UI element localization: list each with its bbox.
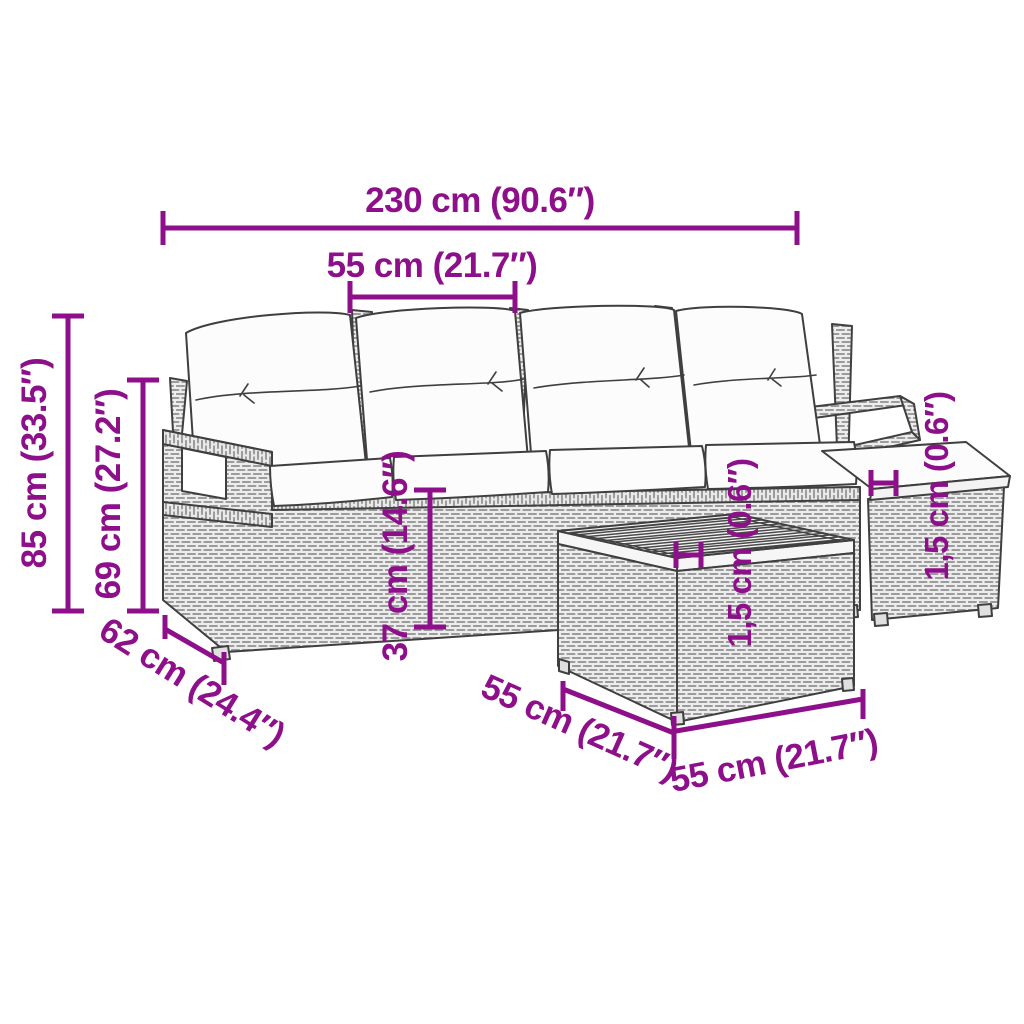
- dim-label-seat-height: 37 cm (14.6″): [376, 451, 415, 662]
- seat-cushion-1: [270, 458, 393, 506]
- dim-label-table-depth: 55 cm (21.7″): [667, 721, 881, 799]
- dim-label-overall-height: 85 cm (33.5″): [15, 358, 54, 569]
- product-dimension-diagram: 230 cm (90.6″) 55 cm (21.7″) 85 cm (33.5…: [0, 0, 1024, 1024]
- furniture-illustration: [163, 306, 1010, 725]
- dim-line-backrest-height: [127, 380, 159, 611]
- seat-cushion-3: [549, 446, 705, 494]
- dim-label-cushion-thickness: 1,5 cm (0.6″): [918, 391, 955, 580]
- back-post-left: [170, 378, 187, 434]
- dim-label-backrest-height: 69 cm (27.2″): [89, 389, 128, 600]
- table-right-face: [677, 553, 854, 722]
- sofa-set-diagram-canvas: 230 cm (90.6″) 55 cm (21.7″) 85 cm (33.5…: [0, 0, 1024, 1024]
- side-table: [558, 514, 854, 725]
- seat-cushion-2: [393, 451, 548, 500]
- dim-label-seat-width: 55 cm (21.7″): [327, 246, 538, 285]
- dim-label-overall-width: 230 cm (90.6″): [365, 181, 595, 220]
- left-armrest-hole: [182, 448, 226, 499]
- dim-label-tabletop-thickness: 1,5 cm (0.6″): [721, 458, 758, 647]
- dim-line-overall-height: [52, 316, 84, 611]
